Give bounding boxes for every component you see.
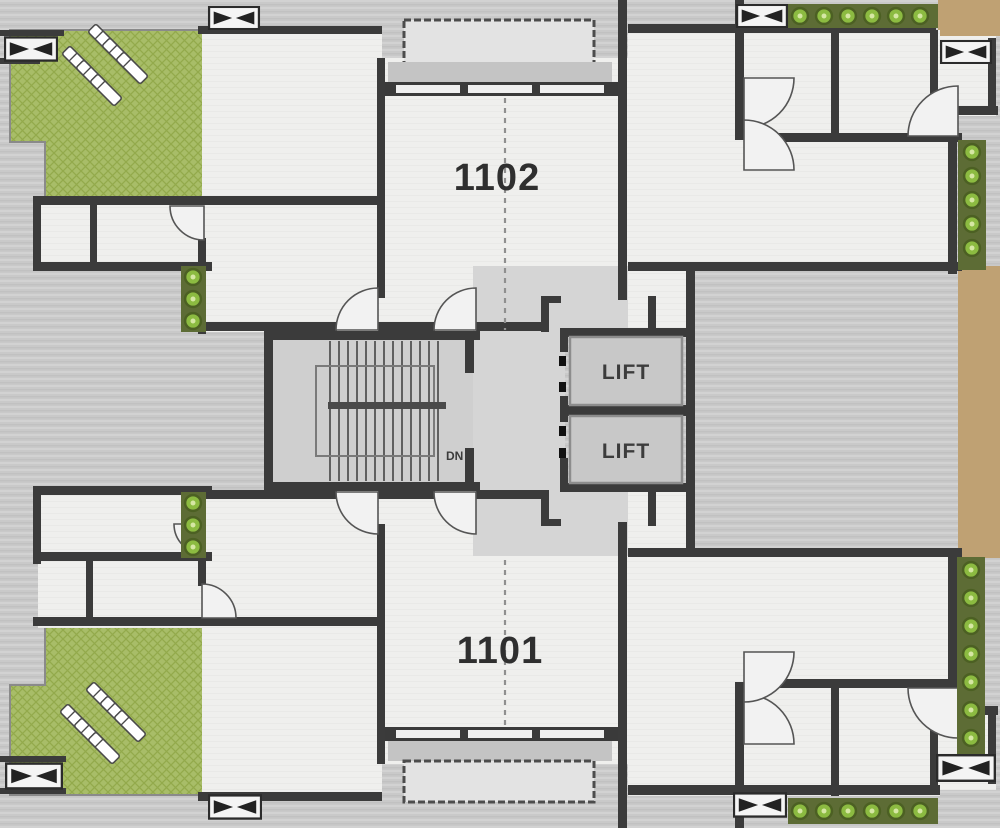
floor-plan-canvas: DN LIFT LIFT (0, 0, 1000, 828)
planter-inner-upper (181, 266, 206, 332)
unit-1101-label: 1101 (457, 630, 543, 672)
window-band (396, 85, 604, 93)
planter-right-lower (957, 557, 985, 767)
unit-1102-label: 1102 (454, 157, 540, 199)
lift-1-label: LIFT (602, 361, 650, 384)
lift-2: LIFT (570, 416, 682, 483)
planter-bottom (788, 798, 938, 824)
balcony-1102-top (381, 20, 622, 96)
window-band (396, 730, 604, 738)
lift-1: LIFT (570, 337, 682, 405)
lift-2-label: LIFT (602, 440, 650, 463)
balcony-1101-bottom (381, 727, 622, 802)
stairs-dn-label: DN (446, 449, 463, 463)
planter-inner-lower (181, 492, 206, 558)
planter-right-upper (958, 140, 986, 270)
floor-plan: DN LIFT LIFT (0, 0, 1000, 828)
planter-top (788, 4, 938, 28)
